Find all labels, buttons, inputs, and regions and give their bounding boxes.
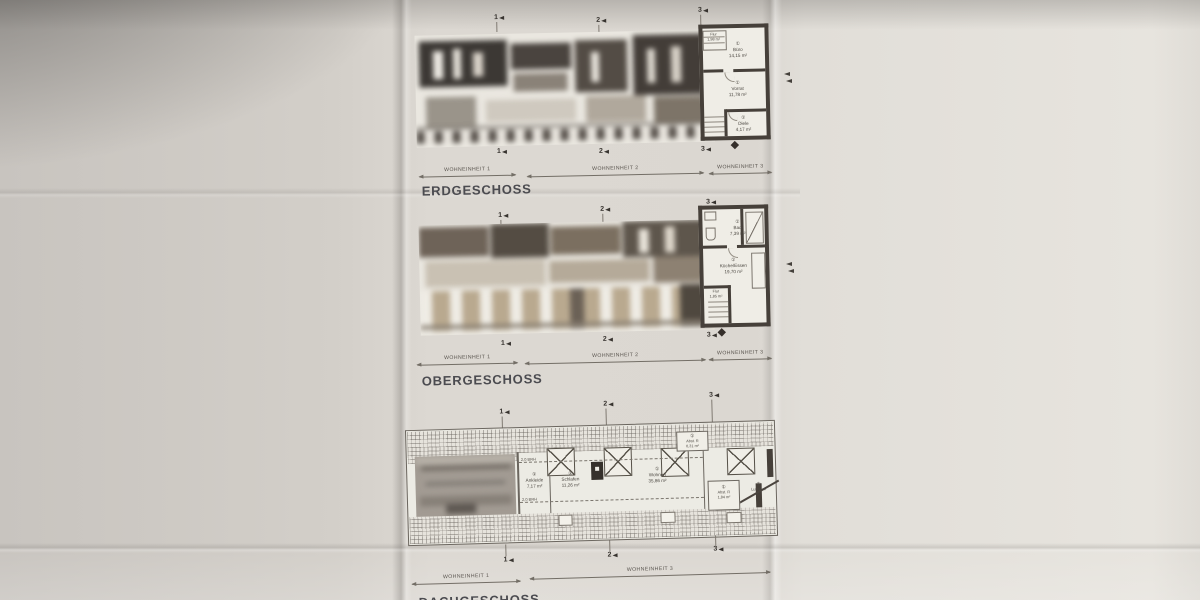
section-marker-top: 2 (603, 400, 613, 407)
section-marker-top: 2 (596, 17, 606, 24)
wall (701, 322, 771, 327)
section-marker-top: 1 (499, 408, 509, 415)
marker-arrow-icon (711, 200, 716, 204)
stair-line (708, 306, 728, 307)
dimension-wohneinheit-2: WOHNEINHEIT 2 (527, 164, 703, 181)
marker-number: 1 (497, 148, 501, 155)
side-arrow-icon (788, 269, 794, 273)
dimension-wohneinheit-1: WOHNEINHEIT 1 (412, 572, 520, 588)
marker-number: 3 (707, 332, 711, 339)
floorplan-photo-sheet: 1 2 3 (0, 0, 1200, 600)
section-marker-top: 1 (498, 212, 508, 219)
roof-hatch-top (407, 422, 774, 456)
dimension-line (709, 358, 771, 360)
section-marker-bottom: 1 (504, 556, 514, 563)
room-label-kueche-essen: ① Küche/Essen 19,70 m² (715, 257, 751, 276)
marker-arrow-icon (604, 149, 609, 153)
dormer-opening (726, 512, 741, 523)
room-label-vorrat: ① Vorrat 11,78 m² (723, 80, 751, 98)
room-label-luftraum: ① Luftraum (744, 481, 774, 493)
room-label-abst-r-1: ① Abst. R 0,31 m² (677, 433, 707, 450)
wall (704, 285, 731, 289)
marker-number: 1 (498, 212, 502, 219)
dimension-line (525, 360, 705, 365)
dimension-wohneinheit-3: WOHNEINHEIT 3 (709, 349, 771, 363)
marker-arrow-icon (714, 393, 719, 397)
attic-building-outline: ① Abst. R 0,31 m² ① Abst. R 1,84 m² ① Lu… (406, 421, 777, 545)
entrance-marker-icon (731, 141, 739, 149)
dimension-line (412, 581, 520, 585)
chimney-block (591, 462, 603, 480)
marker-arrow-icon (605, 207, 610, 211)
redacted-blur-region (415, 454, 517, 517)
blur-smudges (418, 220, 714, 336)
room-label-bad: ① Bad 7,39 m² (724, 219, 750, 237)
dormer-opening (660, 512, 675, 523)
headroom-label: 2,0 BRH (521, 457, 536, 462)
dimension-line (709, 172, 771, 174)
unit-3-rooms: ① Bad 7,39 m² ① Küche/Essen 19,70 m² Flu… (698, 204, 771, 327)
marker-stem (502, 416, 503, 428)
section-marker-bottom: 1 (497, 148, 507, 155)
room-label-ankleide: ① Ankleide 7,17 m² (519, 471, 549, 490)
blur-smudges (415, 454, 517, 517)
section-marker-bottom: 3 (701, 146, 711, 153)
side-arrow-icon (784, 72, 790, 76)
marker-arrow-icon (508, 558, 513, 562)
wall (698, 23, 768, 28)
section-marker-top: 3 (698, 7, 708, 14)
section-marker-top: 2 (600, 206, 610, 213)
marker-arrow-icon (706, 147, 711, 151)
marker-number: 2 (603, 336, 607, 343)
marker-arrow-icon (608, 337, 613, 341)
marker-number: 1 (494, 14, 498, 21)
unit-3-rooms: Flur 1,98 m² ① Büro 14,15 m² ① Vorrat 11… (698, 23, 770, 140)
marker-stem (505, 544, 506, 556)
stair-line (704, 126, 724, 127)
marker-number: 2 (603, 401, 607, 408)
sink-symbol (704, 211, 716, 220)
marker-stem (715, 536, 716, 546)
marker-arrow-icon (703, 8, 708, 12)
room-label-flur: Flur 1,98 m² (702, 32, 724, 42)
marker-arrow-icon (499, 15, 504, 19)
marker-stem (605, 409, 606, 426)
dimension-line (419, 175, 515, 178)
marker-arrow-icon (601, 18, 606, 22)
floorplan-obergeschoss: 1 2 3 (406, 194, 782, 400)
chimney-flue (595, 467, 599, 471)
marker-arrow-icon (712, 333, 717, 337)
dimension-wohneinheit-1: WOHNEINHEIT 1 (419, 166, 515, 181)
marker-arrow-icon (718, 547, 723, 551)
room-label-schlafen: ① Schlafen 11,26 m² (551, 470, 589, 489)
floor-title-dachgeschoss: DACHGESCHOSS (419, 592, 540, 600)
marker-number: 3 (698, 7, 702, 14)
marker-number: 2 (607, 551, 611, 558)
floor-title-obergeschoss: OBERGESCHOSS (422, 371, 543, 389)
dormer-opening (558, 515, 572, 526)
floorplan-dachgeschoss: 1 2 3 (395, 389, 789, 600)
marker-arrow-icon (502, 149, 507, 153)
marker-arrow-icon (504, 410, 509, 414)
marker-number: 1 (499, 408, 503, 415)
marker-number: 1 (501, 340, 505, 347)
room-label-abst-r-2: ① Abst. R 1,84 m² (709, 484, 739, 501)
marker-arrow-icon (506, 341, 511, 345)
marker-stem (496, 22, 497, 32)
marker-number: 2 (599, 148, 603, 155)
wall (701, 135, 771, 140)
dimension-wohneinheit-2: WOHNEINHEIT 2 (525, 351, 705, 368)
section-marker-bottom: 3 (707, 331, 717, 338)
marker-arrow-icon (503, 213, 508, 217)
stair-line (708, 301, 728, 302)
marker-number: 2 (600, 206, 604, 213)
floorplan-erdgeschoss: 1 2 3 (406, 2, 782, 210)
stair-line (708, 316, 728, 317)
wall (764, 23, 770, 139)
redacted-blur-region (414, 30, 714, 148)
wall (767, 449, 774, 477)
room-label-wohnen: ① Wohnen 35,86 m² (635, 466, 679, 485)
section-marker-top: 3 (709, 391, 719, 398)
wall (733, 68, 765, 72)
entrance-marker-icon (718, 328, 726, 336)
wall (703, 69, 723, 72)
marker-number: 3 (713, 546, 717, 553)
redacted-blur-region (418, 220, 714, 336)
section-marker-bottom: 1 (501, 340, 511, 347)
dimension-line (417, 363, 517, 366)
section-marker-bottom: 2 (599, 148, 609, 155)
floor-title-erdgeschoss: ERDGESCHOSS (422, 181, 532, 198)
section-marker-bottom: 3 (713, 545, 723, 552)
wall (737, 244, 765, 248)
dimension-wohneinheit-1: WOHNEINHEIT 1 (417, 354, 517, 369)
blur-smudges (414, 30, 714, 148)
wall (698, 204, 768, 209)
toilet-symbol (706, 227, 716, 240)
roof-window-symbol (604, 447, 633, 477)
marker-number: 2 (596, 17, 600, 24)
marker-arrow-icon (612, 553, 617, 557)
marker-stem (609, 541, 610, 552)
room-label-flur: Flur 1,85 m² (706, 289, 726, 299)
section-marker-top: 1 (494, 14, 504, 21)
marker-arrow-icon (608, 402, 613, 406)
stair-line (704, 121, 724, 122)
wall (703, 245, 727, 249)
dimension-line (527, 173, 703, 178)
marker-number: 3 (709, 392, 713, 399)
side-arrow-icon (786, 262, 792, 266)
side-arrow-icon (786, 79, 792, 83)
wall (724, 109, 728, 136)
stair-line (708, 311, 728, 312)
stair-line (704, 116, 724, 117)
section-marker-bottom: 2 (607, 551, 617, 558)
roof-window-symbol (727, 447, 756, 475)
kitchen-counter (751, 252, 766, 288)
marker-number: 1 (504, 556, 508, 563)
section-marker-bottom: 2 (603, 336, 613, 343)
stair-line (705, 131, 725, 132)
headroom-label: 2,0 BRH (522, 497, 537, 502)
dimension-wohneinheit-3: WOHNEINHEIT 3 (709, 163, 771, 177)
marker-number: 3 (701, 146, 705, 153)
wall (703, 449, 706, 509)
marker-stem (711, 400, 713, 423)
dimension-wohneinheit-3: WOHNEINHEIT 3 (530, 563, 770, 583)
room-label-diele: ① Diele 4,17 m² (730, 115, 756, 133)
wall (728, 285, 732, 323)
room-label-buero: ① Büro 14,15 m² (725, 41, 751, 59)
headroom-line (520, 497, 704, 503)
